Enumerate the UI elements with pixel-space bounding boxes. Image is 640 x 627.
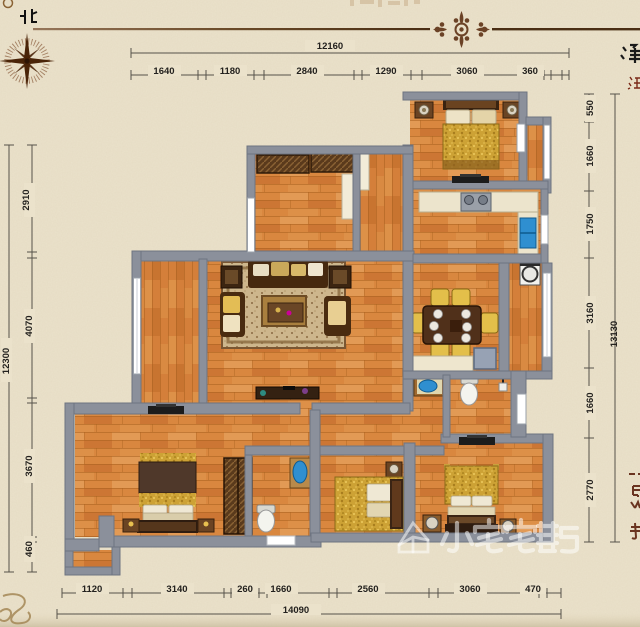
svg-text:550: 550 bbox=[585, 100, 596, 116]
svg-text:2770: 2770 bbox=[585, 479, 596, 500]
svg-text:470: 470 bbox=[525, 584, 541, 595]
svg-text:13130: 13130 bbox=[609, 321, 620, 347]
svg-text:3060: 3060 bbox=[456, 66, 477, 77]
svg-text:1660: 1660 bbox=[270, 584, 291, 595]
svg-text:460: 460 bbox=[24, 541, 35, 557]
svg-text:3670: 3670 bbox=[24, 455, 35, 476]
svg-text:1180: 1180 bbox=[220, 66, 241, 77]
svg-text:2910: 2910 bbox=[21, 189, 32, 210]
svg-text:1660: 1660 bbox=[585, 145, 596, 166]
svg-text:3160: 3160 bbox=[585, 302, 596, 323]
svg-text:1120: 1120 bbox=[82, 584, 103, 595]
svg-text:2560: 2560 bbox=[357, 584, 378, 595]
svg-text:14090: 14090 bbox=[283, 605, 309, 616]
svg-text:1290: 1290 bbox=[375, 66, 396, 77]
svg-text:12300: 12300 bbox=[1, 348, 12, 374]
svg-text:3060: 3060 bbox=[459, 584, 480, 595]
svg-text:260: 260 bbox=[237, 584, 253, 595]
svg-text:4070: 4070 bbox=[24, 315, 35, 336]
svg-text:3140: 3140 bbox=[166, 584, 187, 595]
svg-text:360: 360 bbox=[522, 66, 538, 77]
svg-text:12160: 12160 bbox=[317, 41, 343, 52]
svg-text:2840: 2840 bbox=[296, 66, 317, 77]
svg-text:1640: 1640 bbox=[153, 66, 174, 77]
svg-text:1660: 1660 bbox=[585, 392, 596, 413]
svg-text:1750: 1750 bbox=[585, 213, 596, 234]
